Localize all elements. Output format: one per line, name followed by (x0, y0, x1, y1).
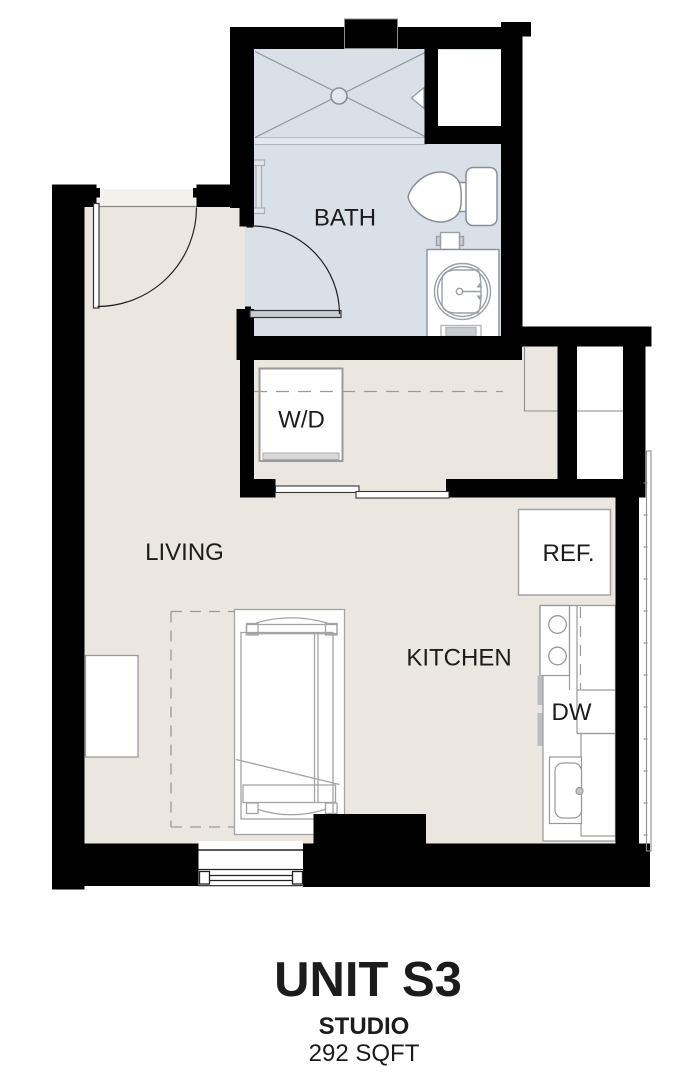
svg-text:DW: DW (552, 699, 592, 726)
svg-text:UNIT S3: UNIT S3 (274, 953, 462, 1007)
svg-text:STUDIO: STUDIO (319, 1013, 410, 1040)
svg-text:W/D: W/D (278, 407, 325, 434)
svg-text:KITCHEN: KITCHEN (406, 645, 511, 672)
svg-text:292 SQFT: 292 SQFT (309, 1040, 420, 1067)
svg-text:BATH: BATH (314, 205, 376, 232)
svg-text:LIVING: LIVING (145, 539, 224, 566)
svg-text:REF.: REF. (542, 540, 594, 567)
